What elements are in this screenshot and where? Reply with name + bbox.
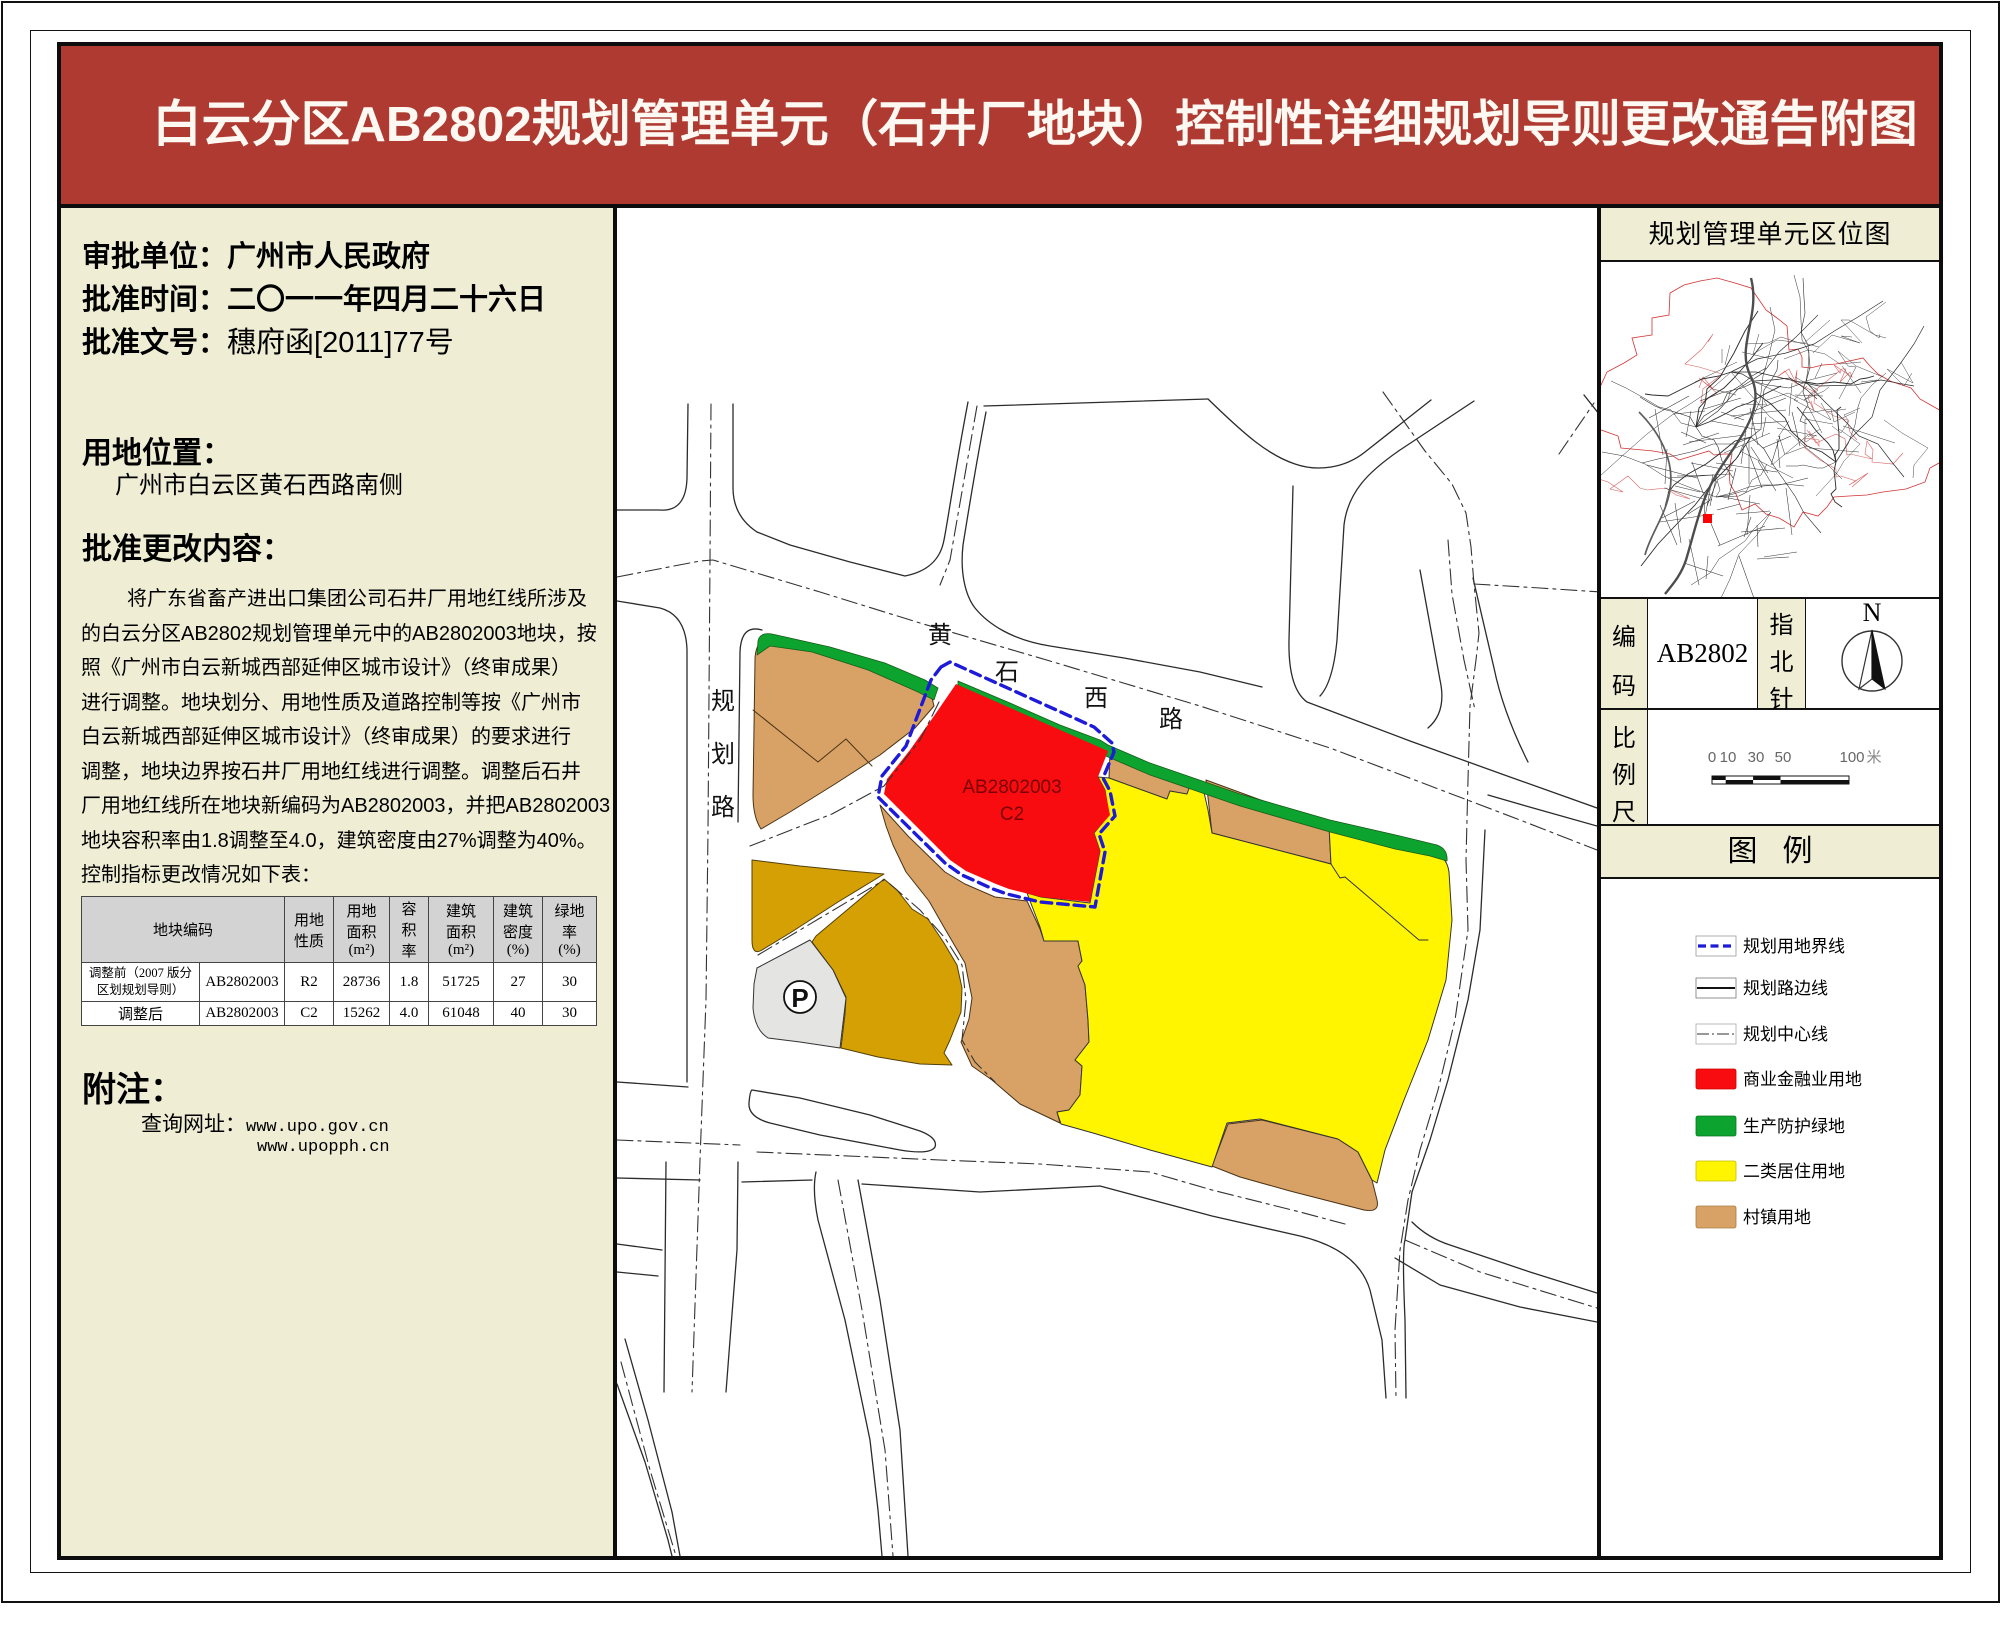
svg-text:二类居住用地: 二类居住用地 [1743, 1162, 1845, 1181]
svg-text:30: 30 [1748, 749, 1765, 766]
svg-text:100: 100 [1839, 749, 1864, 766]
svg-text:规: 规 [711, 688, 735, 715]
svg-text:规划路边线: 规划路边线 [1743, 979, 1828, 998]
svg-text:村镇用地: 村镇用地 [1743, 1208, 1811, 1227]
svg-text:路: 路 [1159, 706, 1183, 733]
svg-text:石: 石 [995, 659, 1019, 686]
svg-text:划: 划 [711, 741, 735, 768]
svg-text:商业金融业用地: 商业金融业用地 [1743, 1070, 1862, 1089]
svg-text:生产防护绿地: 生产防护绿地 [1743, 1117, 1845, 1136]
svg-text:P: P [791, 983, 808, 1013]
svg-text:C2: C2 [1000, 804, 1024, 825]
svg-text:规划中心线: 规划中心线 [1743, 1025, 1828, 1044]
svg-text:50: 50 [1775, 749, 1792, 766]
svg-text:10: 10 [1720, 749, 1737, 766]
svg-text:黄: 黄 [928, 622, 952, 649]
svg-text:西: 西 [1084, 685, 1108, 712]
svg-text:米: 米 [1866, 749, 1881, 766]
svg-text:0: 0 [1708, 749, 1716, 766]
svg-text:N: N [1863, 599, 1882, 627]
svg-text:AB2802003: AB2802003 [962, 777, 1061, 798]
svg-text:规划用地界线: 规划用地界线 [1743, 937, 1845, 956]
svg-text:路: 路 [711, 794, 735, 821]
